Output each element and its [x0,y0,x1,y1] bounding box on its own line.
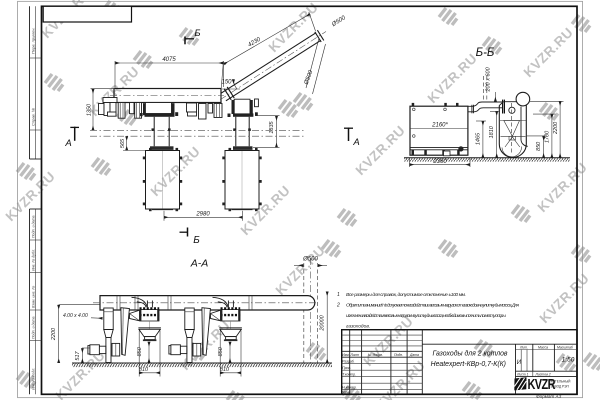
svg-text:1: 1 [337,292,340,298]
svg-text:Справ. №: Справ. № [30,107,35,126]
svg-text:№ докум.: № докум. [368,353,383,357]
svg-text:150°: 150° [222,80,235,86]
svg-text:200 x 600: 200 x 600 [486,66,492,92]
svg-text:2360: 2360 [432,159,447,165]
svg-text:Инв. № подл.: Инв. № подл. [31,368,35,390]
svg-text:517: 517 [75,350,81,360]
svg-text:Т.контр.: Т.контр. [342,373,356,377]
svg-text:Масштаб: Масштаб [557,345,573,349]
svg-text:КОТЕЛЬНЫЙ: КОТЕЛЬНЫЙ [551,380,572,384]
svg-text:Б-Б: Б-Б [476,47,495,59]
svg-text:Лит.: Лит. [519,345,528,349]
svg-text:А: А [352,137,359,148]
svg-text:4075: 4075 [162,57,176,63]
svg-text:ЗАВОД РЭП: ЗАВОД РЭП [551,384,570,388]
svg-text:Heatexpert-КВр-0,7-К(К): Heatexpert-КВр-0,7-К(К) [431,361,506,368]
svg-text:2980: 2980 [195,211,210,217]
svg-text:1:50: 1:50 [562,357,575,364]
svg-text:810: 810 [139,367,149,373]
svg-text:Подп. и дата: Подп. и дата [31,317,35,340]
svg-text:850: 850 [137,346,143,356]
svg-text:газоходов.: газоходов. [346,324,370,330]
svg-text:Подп. и дата: Подп. и дата [31,216,35,239]
svg-text:2200: 2200 [553,121,559,135]
svg-text:2: 2 [336,303,340,309]
svg-text:Перв. примен.: Перв. примен. [30,27,35,54]
svg-text:1810: 1810 [489,125,495,138]
svg-text:Подп.: Подп. [394,353,403,357]
svg-text:Утв.: Утв. [342,390,350,394]
svg-text:1465: 1465 [475,132,481,145]
svg-text:Н.контр.: Н.контр. [342,386,356,390]
svg-text:850: 850 [536,141,542,151]
svg-text:20000: 20000 [319,314,325,331]
svg-text:Инв. № дубл.: Инв. № дубл. [31,249,35,271]
svg-text:Обратите внимание! Не допускае: Обратите внимание! Не допускается воздей… [346,302,519,309]
svg-text:1700: 1700 [544,130,550,143]
svg-text:Разраб.: Разраб. [342,360,354,364]
svg-text:4.00 х 4.00: 4.00 х 4.00 [63,313,88,319]
svg-text:А: А [64,138,71,149]
svg-text:1835: 1835 [269,120,275,133]
svg-text:Б: Б [194,28,200,39]
svg-text:Лист 1: Лист 1 [516,373,529,377]
svg-text:Газоходы для 2 котлов: Газоходы для 2 котлов [432,350,507,358]
svg-text:2160*: 2160* [431,123,448,129]
svg-text:Масса: Масса [538,345,548,349]
svg-text:Изм. Лист: Изм. Лист [342,353,359,357]
svg-text:А-А: А-А [190,258,209,270]
svg-text:Дата: Дата [409,353,419,357]
svg-text:исключения воздействия весовых: исключения воздействия весовых нагрузок … [346,312,506,319]
svg-text:Все размеры для справок, допус: Все размеры для справок, допустимое откл… [346,292,466,298]
svg-text:Б: Б [193,235,200,246]
svg-text:Взам. инв. №: Взам. инв. № [31,286,35,308]
svg-text:Формат А3: Формат А3 [536,394,562,399]
svg-text:Ø500: Ø500 [302,257,318,263]
svg-text:565: 565 [120,138,126,148]
svg-text:И: И [517,360,522,366]
svg-text:Пров.: Пров. [342,366,351,370]
svg-text:2200: 2200 [51,327,57,341]
svg-text:1350: 1350 [87,103,93,116]
